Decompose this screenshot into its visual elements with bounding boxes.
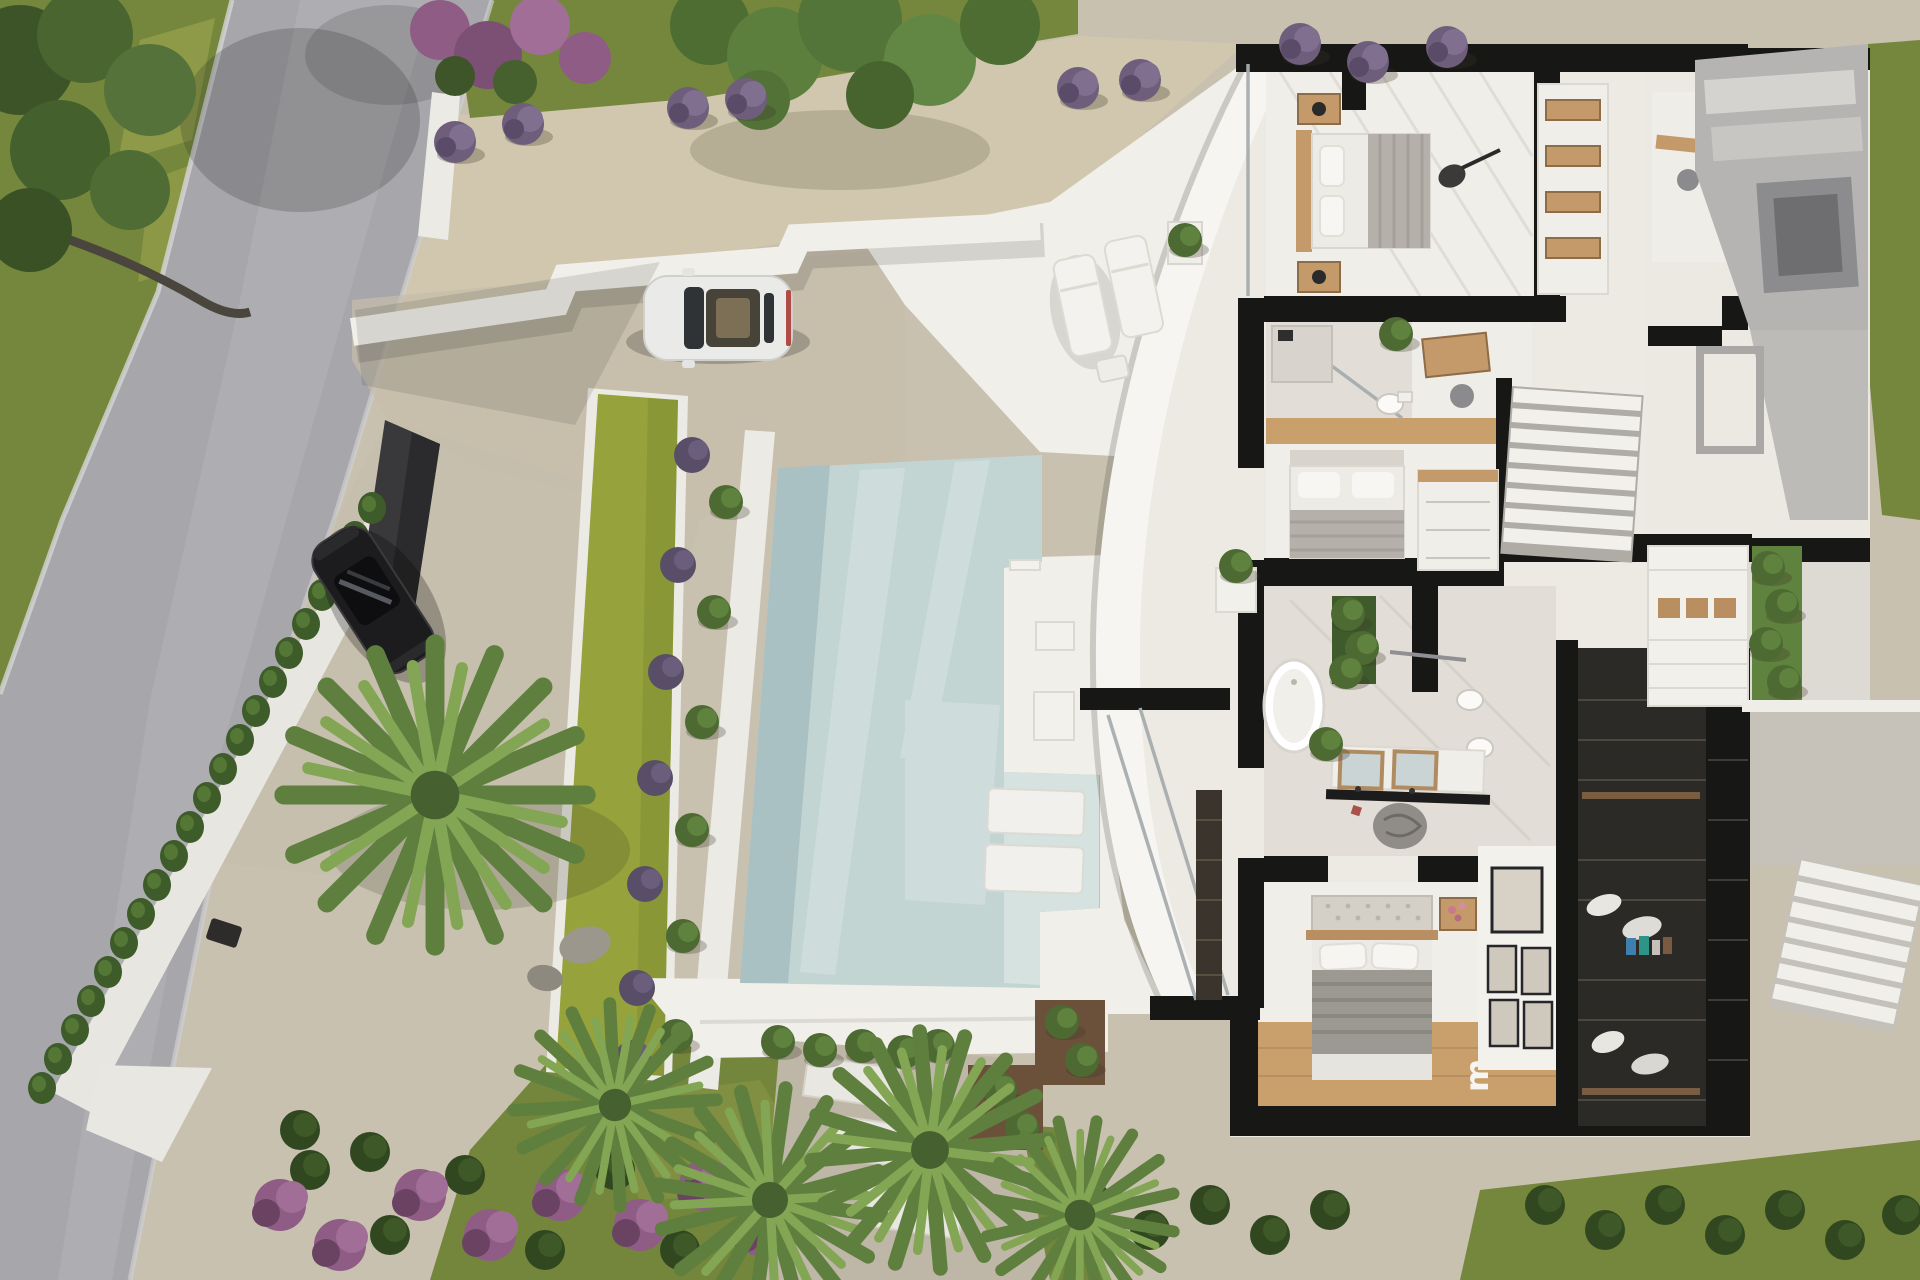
picture-frame — [1488, 946, 1516, 992]
bedside-table — [1440, 898, 1476, 930]
dresser — [1418, 470, 1498, 570]
picture-frame — [1492, 868, 1542, 932]
bedroom2-wood — [1266, 418, 1504, 444]
toilet — [1457, 690, 1483, 710]
shelf-books — [1626, 938, 1636, 955]
pillow — [1352, 472, 1394, 498]
foot-sheet — [1312, 1054, 1432, 1080]
shelf-books — [1639, 936, 1649, 955]
desk — [1422, 333, 1490, 377]
staircase — [1500, 386, 1643, 563]
taillight — [786, 290, 791, 346]
bed-frame-wood — [1306, 930, 1438, 940]
picture-frame — [1490, 1000, 1518, 1046]
palm-tree — [281, 641, 588, 948]
mirror — [682, 268, 695, 276]
cypress-shrub — [358, 492, 386, 524]
patio-wall — [1742, 700, 1920, 712]
picture-frame — [1524, 1002, 1552, 1048]
lamp — [1312, 270, 1326, 284]
chair — [1450, 384, 1474, 408]
tufted-headboard — [1312, 896, 1432, 932]
deck-bench-slats — [1196, 790, 1222, 1000]
pillow — [1371, 943, 1418, 970]
walk-in-closet — [1578, 648, 1706, 1126]
picture-frame — [1522, 948, 1550, 994]
purple-bush — [674, 437, 710, 473]
mirror — [682, 360, 695, 368]
headboard — [1290, 450, 1404, 466]
windshield — [684, 287, 704, 349]
side-table — [1096, 355, 1130, 383]
patio — [1750, 705, 1920, 865]
white-car — [626, 268, 810, 368]
pillow — [1298, 472, 1340, 498]
wing-chair — [1677, 169, 1699, 191]
headboard-wood — [1296, 130, 1312, 252]
rear-window — [764, 293, 774, 343]
shelf-books — [1663, 937, 1672, 954]
pillow — [1320, 146, 1344, 186]
pillow — [1319, 943, 1366, 970]
vanity-mirror — [1393, 751, 1436, 788]
pillow — [1320, 196, 1344, 236]
shower-head — [1278, 330, 1293, 341]
aerial-villa-render: m — [0, 0, 1920, 1280]
shelf-books — [1652, 940, 1660, 955]
lamp — [1312, 102, 1326, 116]
niche-shelf — [1658, 598, 1736, 618]
